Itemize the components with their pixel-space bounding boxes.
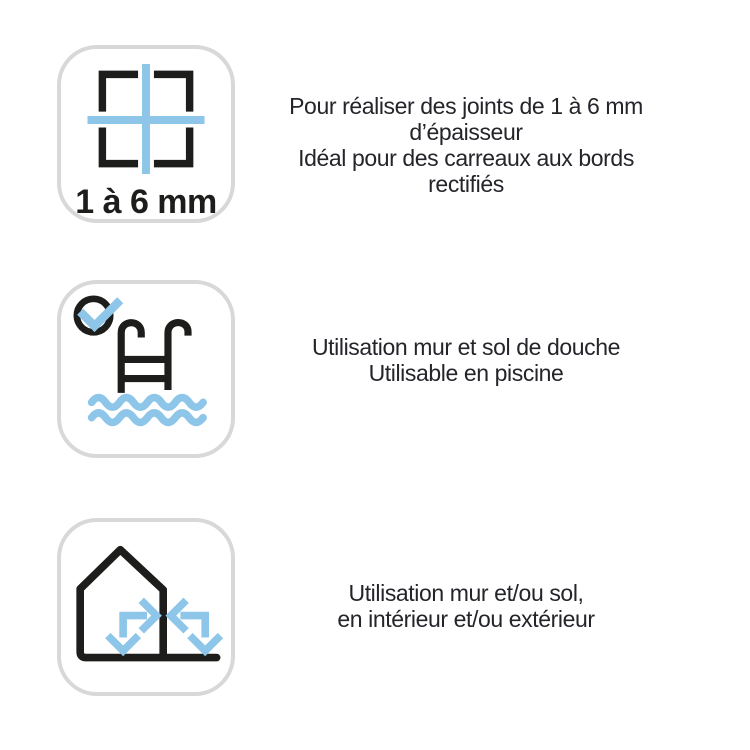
joint-size-badge: 1 à 6 mm bbox=[75, 185, 217, 219]
indoor-outdoor-description: Utilisation mur et/ou sol, en intérieur … bbox=[235, 580, 750, 632]
house-icon-card bbox=[57, 518, 235, 696]
feature-row-indoor-outdoor: Utilisation mur et/ou sol, en intérieur … bbox=[0, 518, 750, 696]
description-line: Utilisation mur et sol de douche bbox=[235, 334, 697, 360]
tile-joint-icon bbox=[86, 62, 206, 181]
pool-ladder-check-icon bbox=[63, 285, 230, 452]
feature-row-shower-pool: Utilisation mur et sol de douche Utilisa… bbox=[0, 280, 750, 458]
house-indoor-outdoor-icon bbox=[63, 523, 230, 690]
description-line: en intérieur et/ou extérieur bbox=[235, 606, 697, 632]
description-line: Utilisable en piscine bbox=[235, 360, 697, 386]
joint-size-icon-card: 1 à 6 mm bbox=[57, 45, 235, 223]
pool-icon-card bbox=[57, 280, 235, 458]
joint-size-description: Pour réaliser des joints de 1 à 6 mm d’é… bbox=[235, 93, 750, 197]
shower-pool-description: Utilisation mur et sol de douche Utilisa… bbox=[235, 334, 750, 386]
product-feature-infographic: 1 à 6 mm Pour réaliser des joints de 1 à… bbox=[0, 0, 750, 750]
description-line: rectifiés bbox=[235, 171, 697, 197]
description-line: Utilisation mur et/ou sol, bbox=[235, 580, 697, 606]
description-line: Pour réaliser des joints de 1 à 6 mm bbox=[235, 93, 697, 119]
description-line: d’épaisseur bbox=[235, 119, 697, 145]
description-line: Idéal pour des carreaux aux bords bbox=[235, 145, 697, 171]
feature-row-joint-size: 1 à 6 mm Pour réaliser des joints de 1 à… bbox=[0, 45, 750, 223]
